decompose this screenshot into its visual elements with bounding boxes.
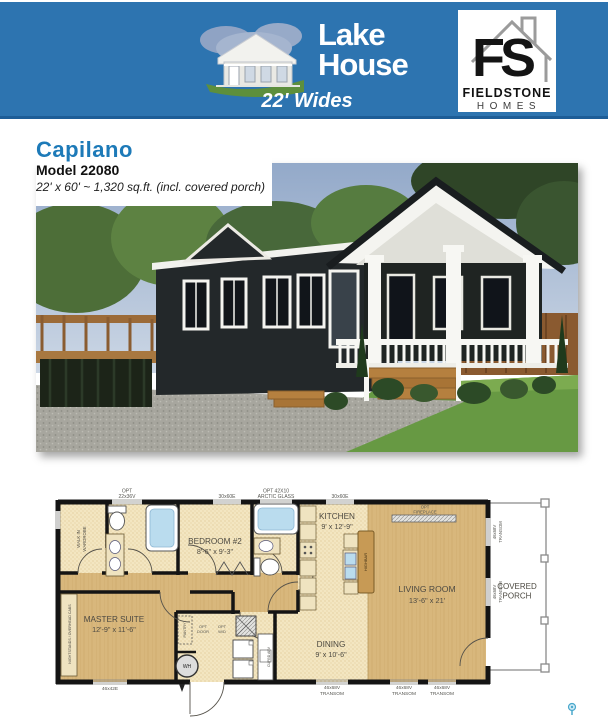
transom-word: TRANSOM	[320, 691, 344, 697]
room-label-porch2: PORCH	[503, 592, 532, 601]
room-label-kitchen: KITCHEN	[319, 512, 355, 521]
model-number: Model 22080	[36, 162, 272, 178]
map-pin-icon	[569, 704, 576, 716]
transom-size: 46x68V	[434, 685, 451, 691]
room-label-porch1: COVERED	[497, 582, 537, 591]
room-label-wardrobe2: WARDROBE	[82, 526, 87, 551]
exterior-photo	[36, 163, 578, 452]
floor-plan: OPT 22x36V 30x60E OPT 42X10 ARCTIC GLASS…	[30, 486, 590, 720]
water-heater-label: WH	[183, 664, 192, 670]
transom-word: TRANSOM	[392, 691, 416, 697]
brand-tagline: 22' Wides	[232, 90, 382, 113]
room-dims-master: 12'-9" x 11'-6"	[92, 625, 136, 634]
room-label-master: MASTER SUITE	[84, 615, 145, 624]
brand-wordmark: Lake House	[318, 20, 408, 80]
lakehouse-cottage-illustration	[196, 18, 314, 100]
fs-monogram: FS	[472, 28, 534, 88]
window-label: 22x36V	[119, 494, 137, 500]
model-title-block: Capilano Model 22080 22' x 60' ~ 1,320 s…	[36, 138, 272, 206]
entry-arrow	[179, 684, 185, 692]
highbar-label: HIGHBAR	[363, 553, 368, 571]
top-window-labels: OPT 22x36V 30x60E OPT 42X10 ARCTIC GLASS…	[119, 489, 350, 501]
hedge-box	[40, 359, 152, 407]
transom-size: 46x68V	[324, 685, 341, 691]
porch-railing	[336, 339, 568, 368]
room-dims-living: 13'-6" x 21'	[409, 596, 446, 605]
room-dims-kitchen: 9' x 12'-9"	[321, 522, 353, 531]
model-name: Capilano	[36, 138, 272, 162]
window-label: 46x42E	[102, 686, 118, 692]
room-label-wardrobe1: WALK IN	[76, 530, 81, 548]
fieldstone-sub: HOMES	[477, 101, 541, 112]
fieldstone-logo-art: FS FIELDSTONE HOMES	[458, 10, 556, 112]
brand-line2: House	[318, 50, 408, 80]
room-dims-dining: 9' x 10'-6"	[315, 650, 347, 659]
transom-word: TRANSOM	[430, 691, 454, 697]
room-label-dining: DINING	[317, 640, 346, 649]
fireplace	[392, 515, 456, 522]
transom-size: 46x68V	[396, 685, 413, 691]
pantry-label: PANTRY	[183, 622, 187, 638]
room-label-bedroom2: BEDROOM #2	[188, 537, 242, 546]
window-label: ARCTIC GLASS	[258, 494, 295, 500]
banner: Lake House 22' Wides FS FIELDSTONE HOMES	[0, 2, 608, 119]
opt-wd-label2: W/D	[218, 629, 226, 634]
transom-size: 46x68V	[492, 525, 497, 540]
nightstands-label: NIGHTSTANDS / OVERHEAD CABS	[68, 604, 72, 664]
fieldstone-logo: FS FIELDSTONE HOMES	[458, 10, 556, 112]
bottom-window-labels: 46x42E 46x68V TRANSOM 46x68V TRANSOM 46x…	[102, 685, 454, 697]
front-door	[330, 271, 358, 347]
room-label-living: LIVING ROOM	[398, 584, 455, 594]
model-specs: 22' x 60' ~ 1,320 sq.ft. (incl. covered …	[36, 180, 272, 194]
transom-word: TRANSOM	[498, 521, 503, 543]
fireplace-label2: FIREPLACE	[413, 510, 436, 515]
window-label: 30x60E	[332, 494, 350, 500]
cupboard-label: CUPBD ABV	[267, 646, 271, 667]
brochure-page: Lake House 22' Wides FS FIELDSTONE HOMES…	[0, 0, 608, 720]
window-label: 30x60E	[219, 494, 237, 500]
fieldstone-name: FIELDSTONE	[463, 86, 552, 100]
opt-door-label2: DOOR	[197, 629, 209, 634]
brand-line1: Lake	[318, 20, 408, 50]
room-dims-bedroom2: 8'-6" x 9'-3"	[197, 547, 234, 556]
